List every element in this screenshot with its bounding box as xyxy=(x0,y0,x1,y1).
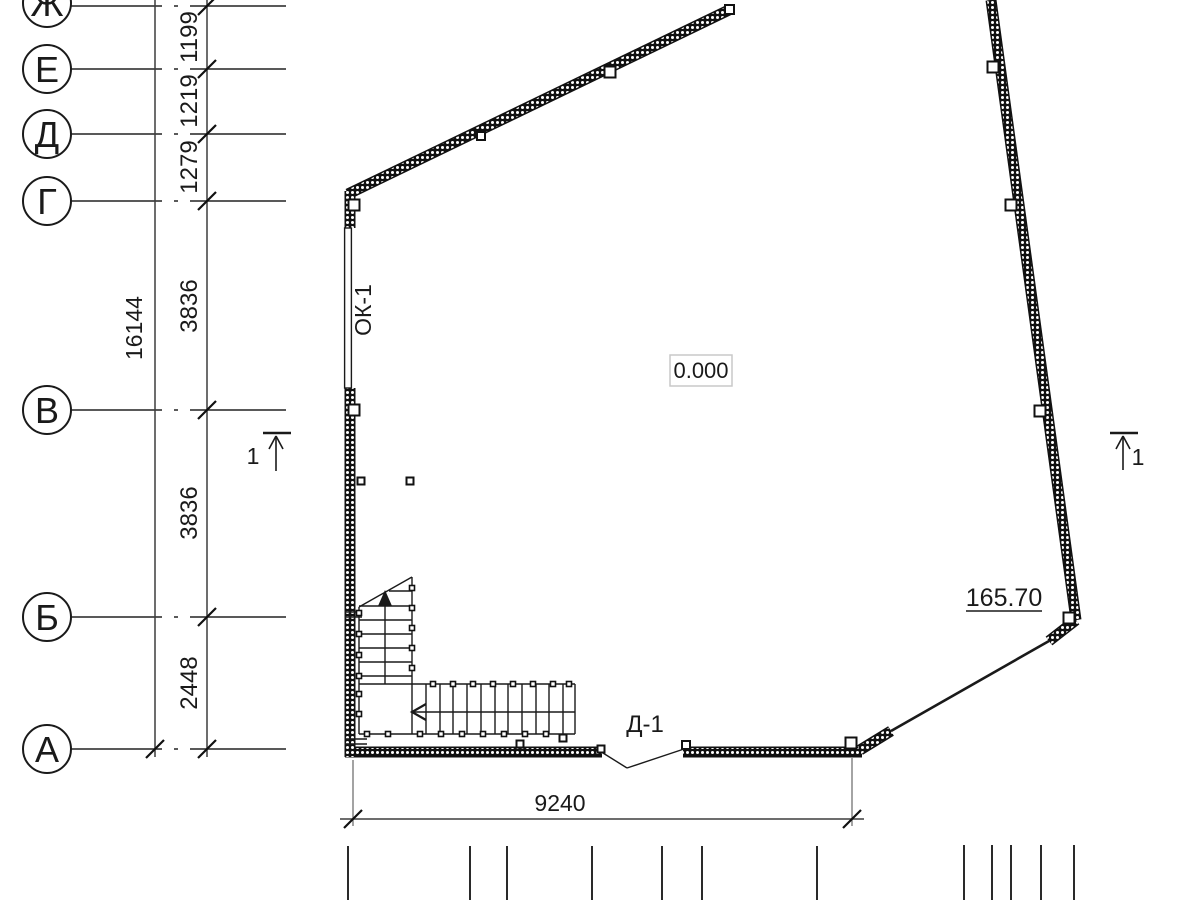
floor-plan-drawing: Ж Е Д Г В Б А 1199 1219 1279 3836 3836 xyxy=(0,0,1200,900)
axis-label: Д xyxy=(35,114,59,155)
node-marker xyxy=(988,62,999,73)
node-marker xyxy=(1035,406,1046,417)
node-marker xyxy=(846,738,857,749)
axis-label: Ж xyxy=(30,0,63,24)
axis-label: Е xyxy=(35,49,59,90)
section-number: 1 xyxy=(1132,444,1145,470)
node-marker xyxy=(560,735,567,742)
door-mark-label: Д-1 xyxy=(626,711,664,738)
node-marker xyxy=(517,741,524,748)
elevation-level-value: 165.70 xyxy=(966,584,1042,612)
node-marker xyxy=(1064,613,1075,624)
dim-value: 3836 xyxy=(176,486,203,539)
dim-value: 3836 xyxy=(176,279,203,332)
node-marker xyxy=(725,5,734,14)
node-marker xyxy=(407,478,414,485)
node-marker xyxy=(358,478,365,485)
dim-value: 2448 xyxy=(176,656,203,709)
overall-dim-value: 16144 xyxy=(121,296,147,360)
axis-label: Г xyxy=(37,181,57,222)
dim-value: 1199 xyxy=(176,11,203,63)
node-marker xyxy=(349,405,360,416)
axis-label: В xyxy=(35,390,59,431)
dim-value: 1279 xyxy=(176,140,203,193)
node-marker xyxy=(1006,200,1017,211)
node-marker xyxy=(605,67,616,78)
bottom-dim-value: 9240 xyxy=(534,790,585,816)
dim-value: 1219 xyxy=(176,74,203,127)
section-number: 1 xyxy=(247,443,260,469)
elevation-zero-value: 0.000 xyxy=(673,358,728,383)
node-marker xyxy=(682,741,690,749)
window-mark-label: ОК-1 xyxy=(350,284,376,336)
node-marker xyxy=(349,200,360,211)
axis-label: А xyxy=(35,729,59,770)
axis-label: Б xyxy=(35,597,59,638)
node-marker xyxy=(477,132,485,140)
node-marker xyxy=(598,746,605,753)
canvas-background xyxy=(0,0,1200,900)
